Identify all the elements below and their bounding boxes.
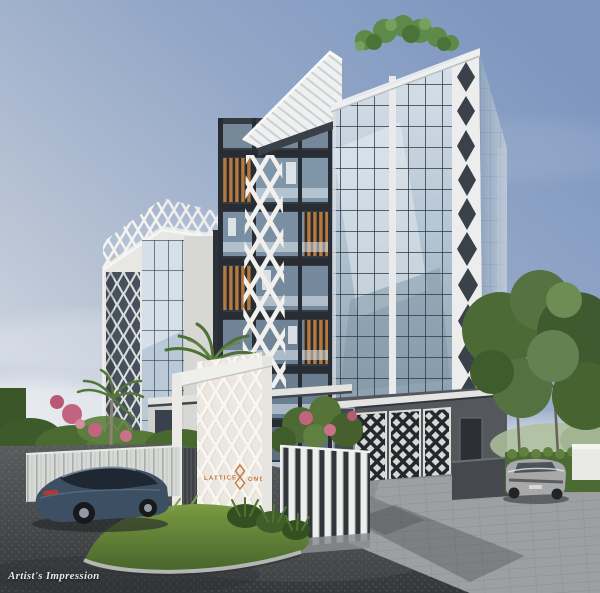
sedan-right — [503, 459, 569, 504]
scene-canvas: LATTICE ONE — [0, 0, 600, 593]
caption: Artist's Impression — [8, 570, 100, 582]
sign-text-left: LATTICE — [204, 474, 237, 482]
boundary-wall — [572, 444, 600, 480]
architectural-rendering: LATTICE ONE — [0, 0, 600, 593]
white-mullion-strip — [389, 76, 396, 396]
curtain-wall — [333, 60, 453, 405]
entrance-door — [460, 418, 482, 466]
